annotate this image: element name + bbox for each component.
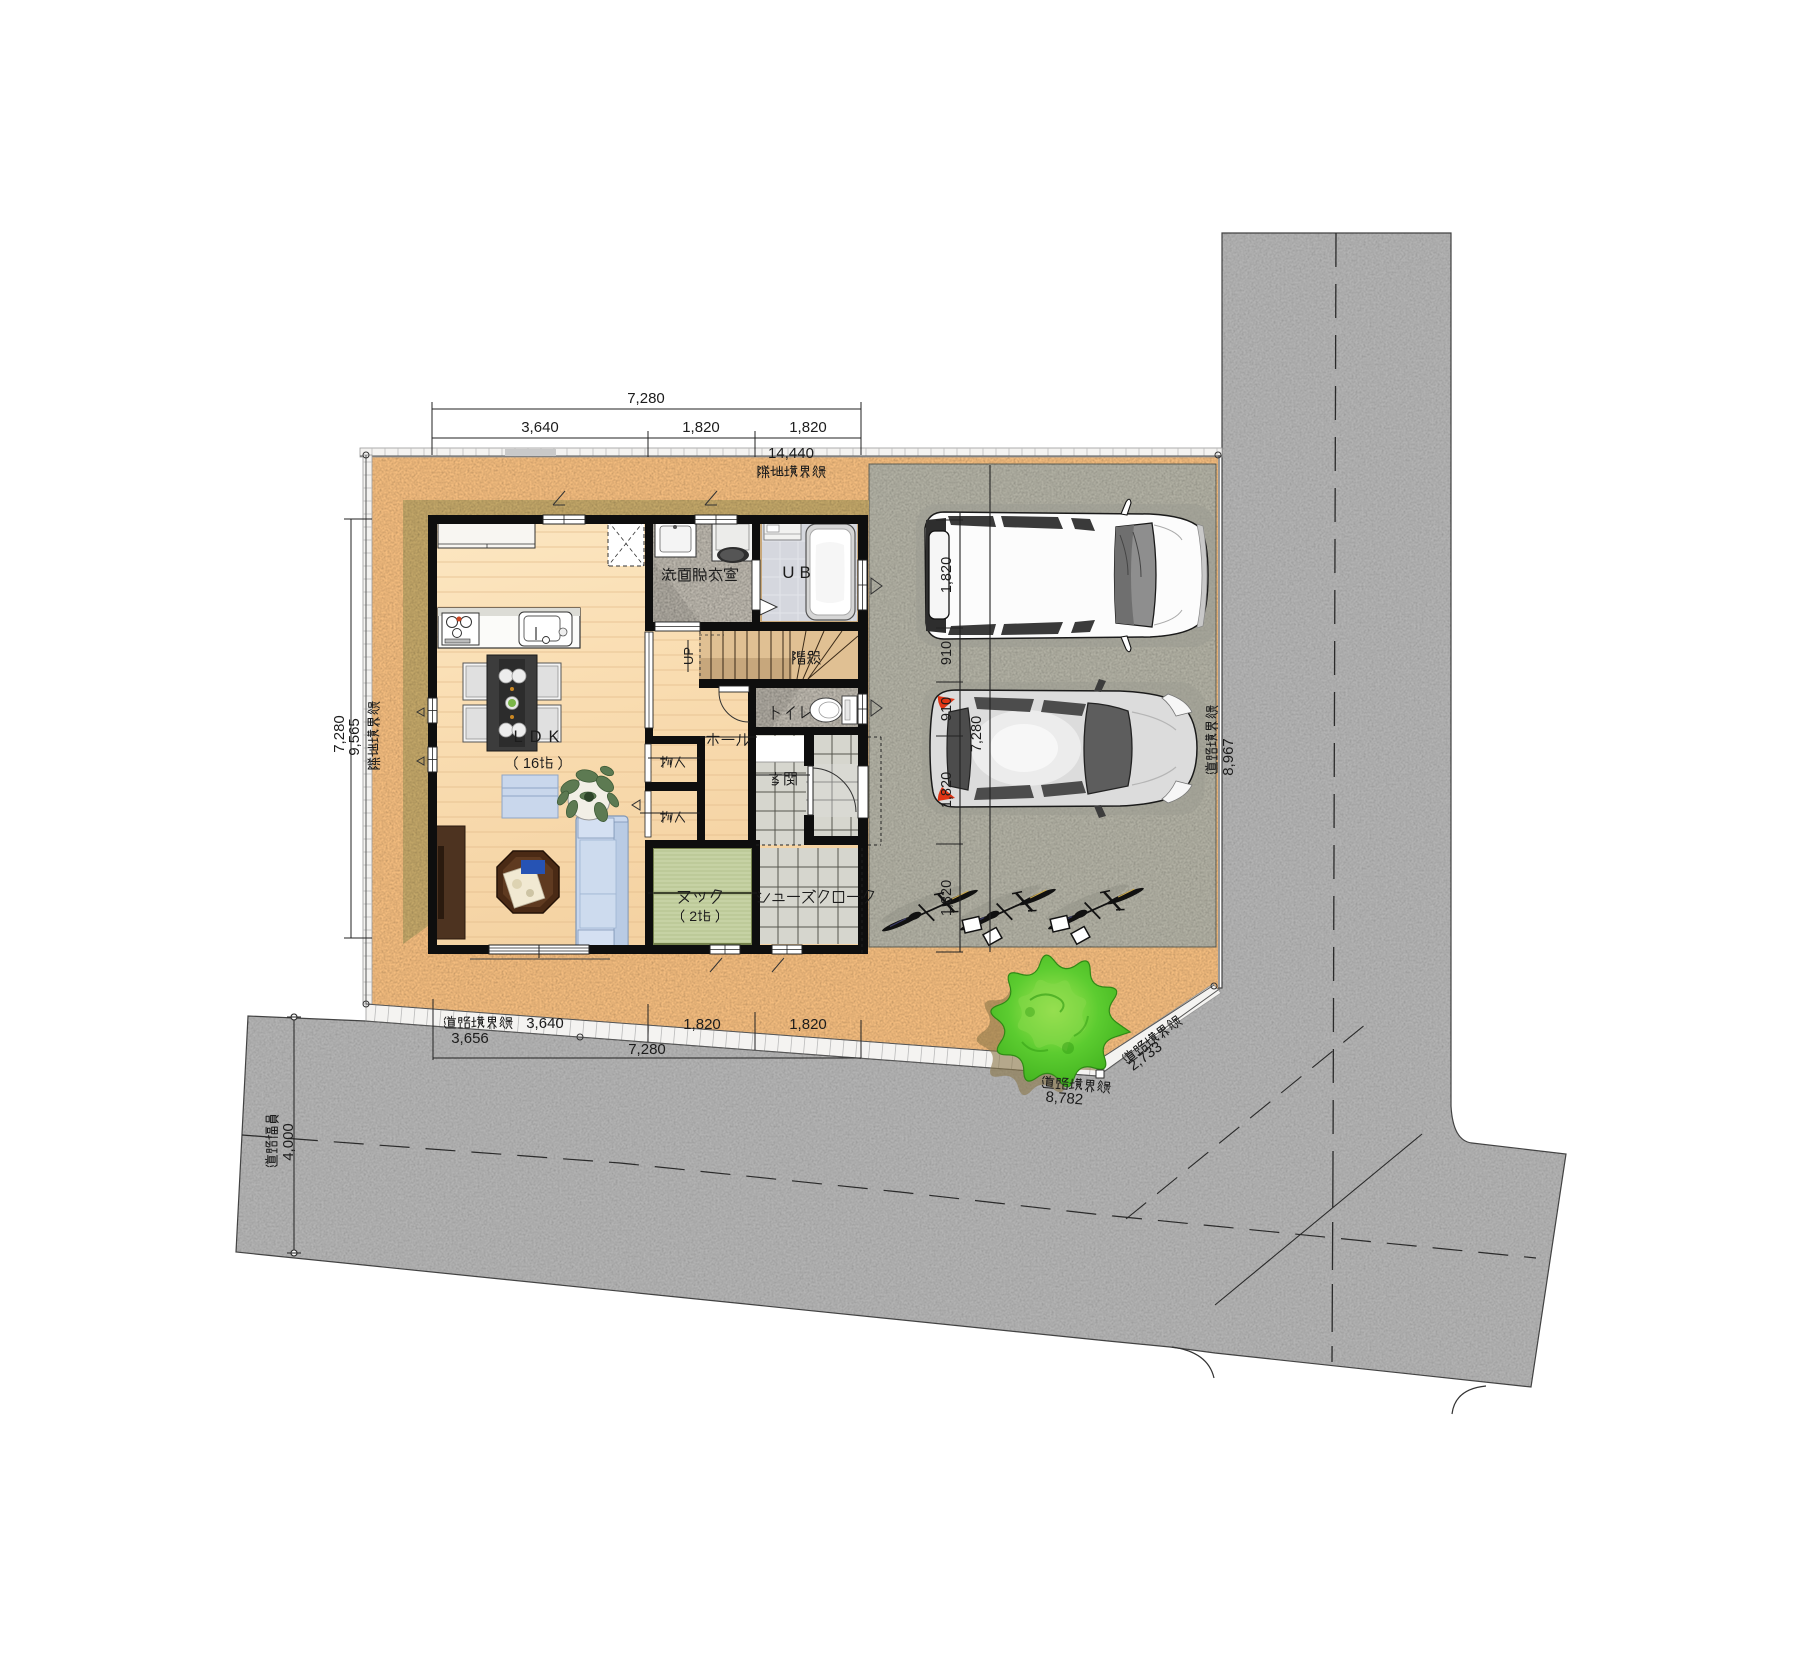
svg-text:2: 2 xyxy=(689,909,697,925)
svg-text:14,440: 14,440 xyxy=(768,445,814,462)
svg-text:6: 6 xyxy=(531,756,539,772)
svg-text:1,820: 1,820 xyxy=(683,1016,721,1033)
svg-text:910: 910 xyxy=(939,697,955,721)
svg-text:3,640: 3,640 xyxy=(521,419,559,436)
svg-text:1,820: 1,820 xyxy=(789,419,827,436)
svg-text:4,000: 4,000 xyxy=(280,1123,297,1161)
svg-text:7,280: 7,280 xyxy=(969,716,985,752)
svg-text:1: 1 xyxy=(523,756,531,772)
svg-text:7,280: 7,280 xyxy=(627,390,665,407)
svg-text:1,820: 1,820 xyxy=(939,880,955,916)
svg-text:910: 910 xyxy=(939,641,955,665)
svg-text:3,640: 3,640 xyxy=(526,1015,564,1032)
svg-text:8,967: 8,967 xyxy=(1220,738,1237,776)
svg-text:UB: UB xyxy=(782,563,816,582)
svg-text:1,820: 1,820 xyxy=(789,1016,827,1033)
svg-text:3,656: 3,656 xyxy=(451,1030,489,1047)
svg-text:1,820: 1,820 xyxy=(682,419,720,436)
svg-text:7,280: 7,280 xyxy=(628,1041,666,1058)
svg-text:9,565: 9,565 xyxy=(346,718,363,756)
svg-text:LDK: LDK xyxy=(513,728,566,746)
svg-text:8,782: 8,782 xyxy=(1045,1089,1084,1109)
svg-text:1,820: 1,820 xyxy=(939,557,955,593)
svg-text:1,820: 1,820 xyxy=(939,772,955,808)
